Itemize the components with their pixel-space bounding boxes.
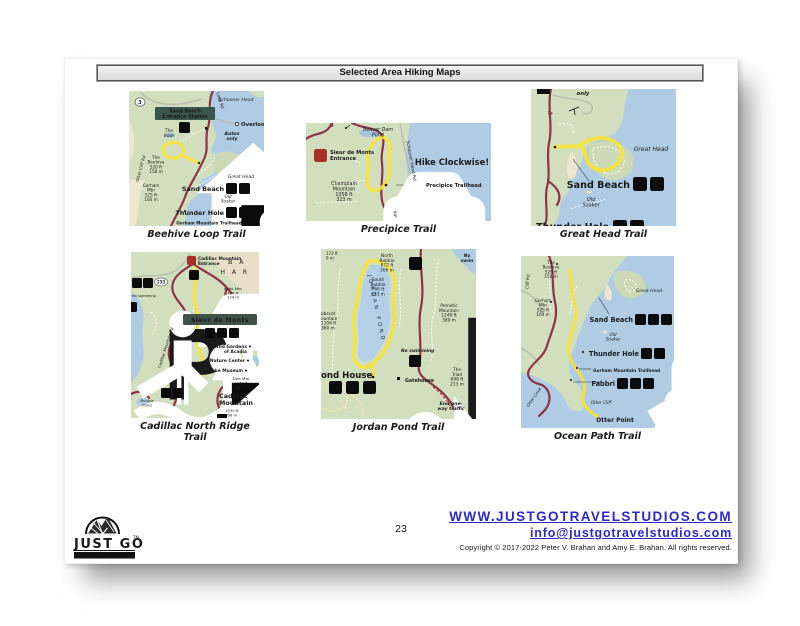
- label-gatehouse: Gatehouse: [405, 378, 435, 384]
- label-abbe-museum: Abbe Museum: [208, 368, 243, 374]
- route-3-shield: 3: [138, 100, 142, 106]
- label-great-head: Great Head: [228, 174, 254, 180]
- caption-precipice: Precipice Trail: [306, 224, 491, 235]
- logo-tm: TM: [132, 535, 139, 540]
- document-page: Selected Area Hiking Maps 3 Schoo: [64, 58, 738, 564]
- label-great-head: Great Head: [636, 288, 662, 294]
- map-figure-jordan: 173 ft9 m NorthBubble872 ft266 m SouthBu…: [321, 249, 476, 433]
- label-hike-clockwise: Hike Clockwise!: [415, 157, 489, 167]
- label-thunder-hole-cut: Thunder Hole: [536, 222, 609, 226]
- label-sand-beach: Sand Beach: [590, 316, 634, 324]
- caption-beehive: Beehive Loop Trail: [129, 229, 264, 240]
- label-cadillac-elev: 1530 ft466 m: [225, 408, 239, 417]
- label-gorham-trailhead: Gorham Mountain Trailhead: [593, 368, 660, 374]
- label-great-head: Great Head: [634, 146, 669, 153]
- label-overlook: Overlook: [241, 122, 264, 128]
- caption-great-head: Great Head Trail: [531, 229, 676, 240]
- map-figure-ocean-path: TheBeehive520 ft158 m GorhamMtn525 ft160…: [521, 256, 674, 442]
- map-figure-precipice: Beaver DamPond Sieur de MontsEntrance Hi…: [306, 123, 491, 235]
- caption-jordan: Jordan Pond Trail: [321, 422, 476, 433]
- page-header-bar: Selected Area Hiking Maps: [97, 65, 703, 81]
- map-beehive-loop: 3 Schooner Head Sand BeachEntrance Stati…: [129, 91, 264, 226]
- label-otter-cliff: Otter Cliff: [591, 400, 612, 405]
- label-fabbri: Fabbri: [591, 380, 615, 388]
- label-no-swimming: No swimming: [132, 294, 156, 298]
- label-end-one-way: End one-way traffic: [437, 401, 465, 412]
- label-no-swimming: No swimming: [401, 348, 434, 354]
- label-nature-center: Nature Center: [210, 358, 246, 364]
- caption-cadillac: Cadillac North Ridge Trail: [131, 421, 259, 443]
- label-thunder-hole: Thunder Hole: [175, 209, 224, 217]
- map-great-head: only Great Head Sand Beach OldSoaker Thu…: [531, 89, 676, 226]
- label-har: H A R: [220, 269, 249, 276]
- footer-links: WWW.JUSTGOTRAVELSTUDIOS.COM info@justgot…: [449, 509, 732, 552]
- label-gorham-mtn: GorhamMtn525 ft160 m: [143, 183, 160, 202]
- label-bar: B A: [228, 259, 246, 266]
- label-only: only: [577, 91, 590, 97]
- map-precipice: Beaver DamPond Sieur de MontsEntrance Hi…: [306, 123, 491, 221]
- map-jordan-pond: 173 ft9 m NorthBubble872 ft266 m SouthBu…: [321, 249, 476, 419]
- label-gorham-mtn: GorhamMtn525 ft160 m: [535, 298, 552, 317]
- website-link[interactable]: WWW.JUSTGOTRAVELSTUDIOS.COM: [449, 509, 732, 525]
- map-figure-beehive: 3 Schooner Head Sand BeachEntrance Stati…: [129, 91, 264, 240]
- label-otter-point: Otter Point: [596, 417, 634, 424]
- page-title: Selected Area Hiking Maps: [339, 67, 460, 78]
- map-cadillac-north-ridge: 233 Cadillac MountainEntrance B A H A R …: [131, 252, 259, 418]
- label-precipice-trailhead: Precipice Trailhead: [426, 183, 482, 189]
- label-gorham-trailhead: Gorham Mountain Trailhead: [176, 221, 242, 226]
- logo-subtext: TRAVEL STUDIOS: [76, 553, 132, 558]
- label-sand-beach: Sand Beach: [567, 180, 630, 191]
- label-sand-beach: Sand Beach: [182, 185, 225, 193]
- label-thunder-hole: Thunder Hole: [589, 350, 640, 358]
- map-ocean-path: TheBeehive520 ft158 m GorhamMtn525 ft160…: [521, 256, 674, 428]
- email-link[interactable]: info@justgotravelstudios.com: [449, 526, 732, 541]
- copyright-text: Copyright © 2017-2022 Peter V. Brahan an…: [449, 543, 732, 552]
- label-north-bubble: NorthBubble872 ft266 m: [380, 253, 395, 273]
- screenshot-root: { "page": { "title": "Selected Area Hiki…: [0, 0, 800, 626]
- route-233-shield: 233: [157, 280, 166, 285]
- map-figure-cadillac: 233 Cadillac MountainEntrance B A H A R …: [131, 252, 259, 443]
- caption-ocean-path: Ocean Path Trail: [521, 431, 674, 442]
- label-sieur-de-monts: Sieur de Monts: [191, 317, 249, 324]
- label-pond-house: ond House: [321, 371, 372, 381]
- map-figure-great-head: only Great Head Sand Beach OldSoaker Thu…: [531, 89, 676, 240]
- label-autos-only: Autosonly: [224, 131, 240, 142]
